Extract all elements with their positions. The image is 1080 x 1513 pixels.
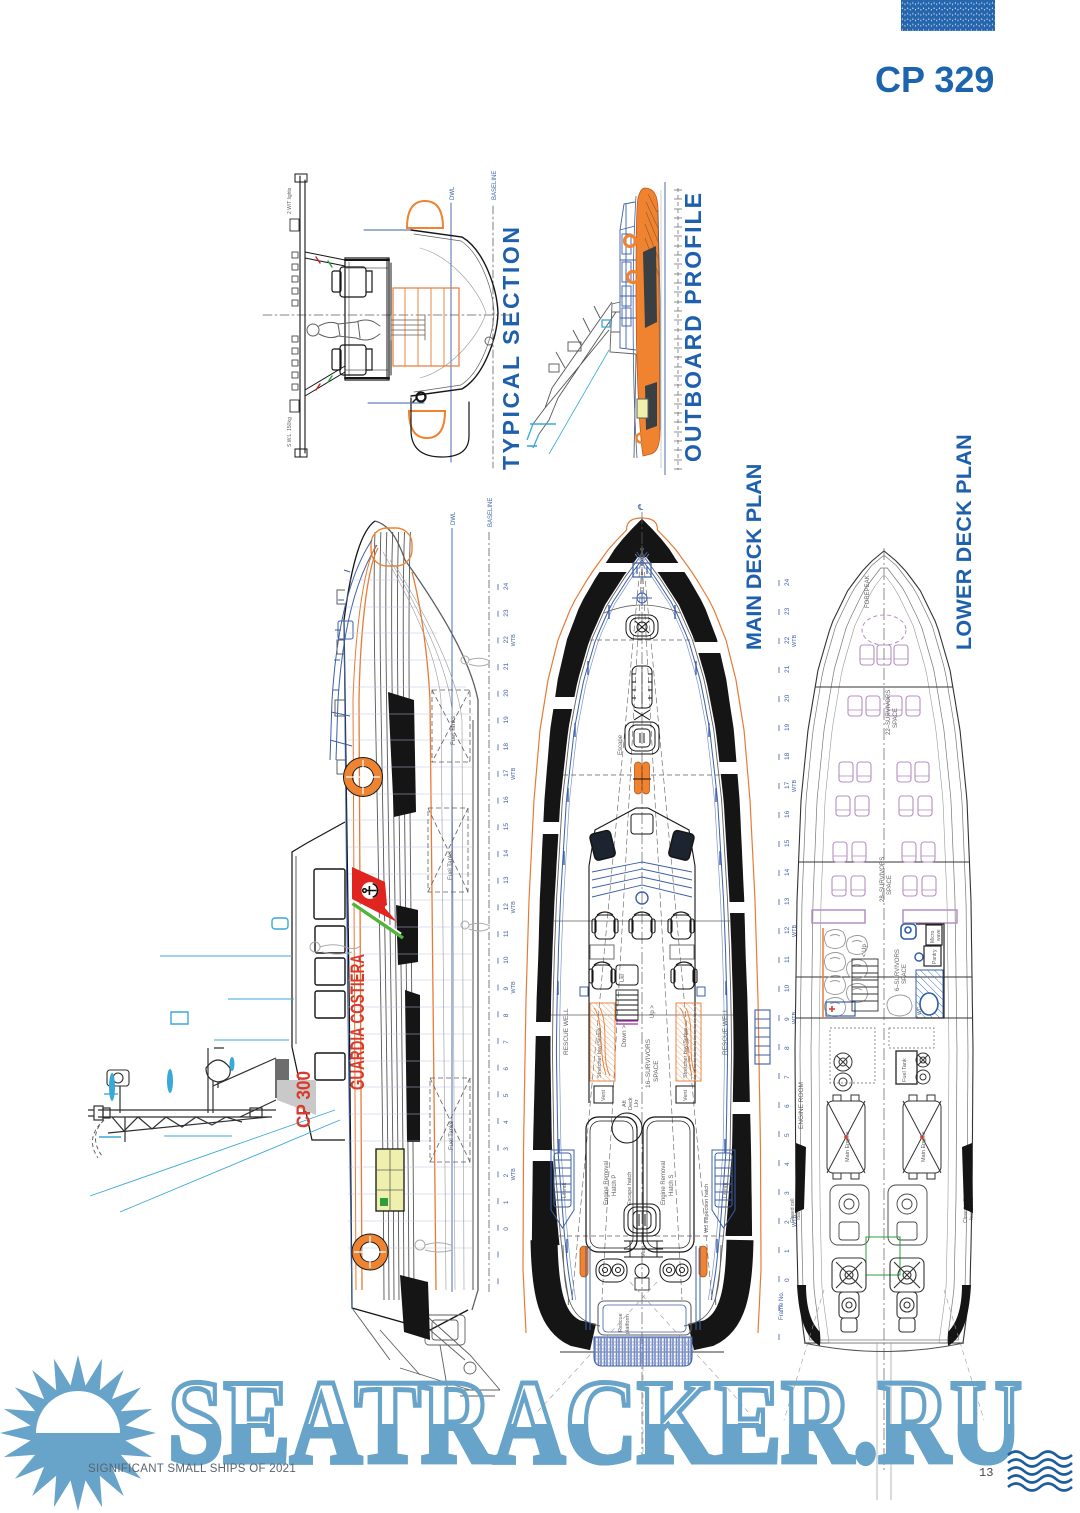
svg-text:Engine Removal: Engine Removal [661, 1161, 667, 1205]
svg-text:WC: WC [917, 1006, 923, 1015]
svg-text:15: 15 [503, 823, 510, 831]
svg-text:LOWER DECK PLAN: LOWER DECK PLAN [952, 434, 976, 650]
svg-text:8: 8 [503, 1013, 510, 1017]
svg-text:21: 21 [784, 665, 791, 673]
svg-text:RESCUE WELL: RESCUE WELL [722, 1008, 729, 1055]
svg-text:11: 11 [503, 930, 510, 937]
svg-text:Stretcher bay/Settee: Stretcher bay/Settee [683, 1028, 689, 1078]
svg-text:SPACE: SPACE [887, 875, 893, 895]
svg-text:5: 5 [784, 1133, 791, 1137]
svg-text:12: 12 [503, 903, 510, 911]
svg-text:CP 300: CP 300 [294, 1071, 315, 1128]
svg-text:28–SURVIVORS: 28–SURVIVORS [880, 857, 886, 902]
svg-text:8: 8 [784, 1046, 791, 1050]
svg-text:10: 10 [784, 984, 791, 992]
svg-text:23: 23 [784, 607, 791, 615]
svg-text:0: 0 [784, 1278, 791, 1282]
svg-text:21: 21 [503, 662, 510, 670]
svg-text:wave: wave [936, 929, 942, 941]
svg-text:SPACE: SPACE [902, 964, 908, 984]
svg-text:ENGINE ROOM: ENGINE ROOM [798, 1082, 805, 1129]
svg-text:GUARDIA COSTIERA: GUARDIA COSTIERA [348, 954, 369, 1090]
svg-text:Stretcher bay/Settee: Stretcher bay/Settee [597, 1028, 603, 1078]
svg-text:6: 6 [503, 1067, 510, 1071]
svg-text:22: 22 [503, 636, 510, 644]
svg-text:Fuel Tanks: Fuel Tanks [449, 1121, 455, 1150]
svg-text:Rescue: Rescue [618, 1313, 624, 1332]
svg-text:3: 3 [784, 1191, 791, 1195]
svg-text:WJ inspection hatch: WJ inspection hatch [704, 1184, 710, 1233]
svg-text:Hatch S: Hatch S [669, 1175, 675, 1196]
svg-text:Fuel Tank: Fuel Tank [902, 1058, 908, 1082]
svg-text:4: 4 [503, 1120, 510, 1124]
svg-text:Hatch P: Hatch P [612, 1175, 618, 1196]
svg-text:DWL: DWL [451, 511, 457, 525]
svg-text:24: 24 [784, 578, 791, 586]
svg-text:WTB: WTB [792, 779, 798, 792]
svg-text:< Up: < Up [862, 943, 868, 957]
svg-text:Vent: Vent [641, 1246, 647, 1257]
svg-text:19: 19 [503, 716, 510, 724]
svg-text:16–SURVIVORS: 16–SURVIVORS [645, 1038, 652, 1088]
svg-text:BASELINE: BASELINE [492, 171, 498, 200]
svg-text:WTB: WTB [511, 1168, 517, 1181]
svg-text:CP 329: CP 329 [875, 59, 994, 100]
svg-text:DWL: DWL [450, 186, 456, 200]
svg-text:7: 7 [784, 1075, 791, 1079]
svg-text:10: 10 [503, 956, 510, 964]
svg-text:15: 15 [784, 839, 791, 847]
svg-text:S.W.L. 150kg: S.W.L. 150kg [287, 417, 293, 447]
svg-text:℄: ℄ [637, 503, 644, 512]
svg-text:OUTBOARD PROFILE: OUTBOARD PROFILE [680, 191, 706, 462]
svg-text:WTB: WTB [511, 901, 517, 914]
svg-text:SIGNIFICANT SMALL SHIPS OF 202: SIGNIFICANT SMALL SHIPS OF 2021 [88, 1463, 296, 1475]
svg-text:MAIN DECK PLAN: MAIN DECK PLAN [742, 464, 766, 650]
svg-text:4: 4 [784, 1162, 791, 1166]
svg-text:18: 18 [784, 752, 791, 760]
svg-text:17: 17 [503, 769, 510, 777]
svg-text:2 W/T lights: 2 W/T lights [287, 187, 293, 214]
svg-text:Lkr: Lkr [620, 974, 626, 982]
svg-text:20: 20 [784, 694, 791, 702]
svg-text:Frame No.: Frame No. [779, 1291, 785, 1320]
svg-text:16: 16 [503, 796, 510, 804]
svg-text:14: 14 [503, 849, 510, 857]
svg-text:Down >: Down > [621, 1025, 628, 1047]
svg-text:Escape: Escape [618, 734, 624, 755]
svg-text:5: 5 [503, 1093, 510, 1097]
svg-text:19: 19 [784, 723, 791, 731]
svg-text:0: 0 [503, 1227, 510, 1231]
svg-text:platform: platform [625, 1314, 631, 1334]
svg-text:SPACE: SPACE [893, 708, 899, 728]
svg-text:Up >: Up > [650, 1005, 656, 1018]
svg-text:Fuel Tanks: Fuel Tanks [451, 716, 457, 745]
svg-text:WTB: WTB [511, 981, 517, 994]
svg-text:SPACE: SPACE [653, 1060, 660, 1082]
svg-text:22–SURVIVORS: 22–SURVIVORS [886, 690, 892, 735]
svg-text:Escape hatch: Escape hatch [627, 1172, 633, 1205]
svg-text:23: 23 [503, 609, 510, 617]
svg-text:9: 9 [784, 1017, 791, 1021]
svg-text:12: 12 [784, 926, 791, 934]
svg-text:17: 17 [784, 781, 791, 789]
svg-text:1: 1 [784, 1249, 791, 1253]
svg-text:6: 6 [784, 1104, 791, 1108]
svg-text:2: 2 [503, 1173, 510, 1177]
svg-text:7: 7 [503, 1040, 510, 1044]
svg-text:Engine Removal: Engine Removal [604, 1161, 610, 1205]
svg-text:Liferaft: Liferaft [562, 1182, 568, 1198]
svg-text:13: 13 [979, 1466, 993, 1480]
svg-text:13: 13 [784, 897, 791, 905]
svg-text:BASELINE: BASELINE [488, 498, 494, 527]
svg-text:RESCUE WELL: RESCUE WELL [563, 1008, 570, 1055]
svg-text:14: 14 [784, 868, 791, 876]
svg-text:6–SURVIVORS: 6–SURVIVORS [895, 949, 901, 991]
svg-text:Lkr: Lkr [634, 1099, 640, 1107]
svg-text:WTB: WTB [511, 767, 517, 780]
svg-text:1: 1 [503, 1200, 510, 1204]
svg-text:Vent: Vent [683, 1090, 689, 1101]
svg-text:TYPICAL SECTION: TYPICAL SECTION [498, 224, 524, 470]
svg-text:FOREPEAK: FOREPEAK [865, 575, 871, 608]
svg-text:9: 9 [503, 987, 510, 991]
svg-text:22: 22 [784, 636, 791, 644]
svg-text:20: 20 [503, 689, 510, 697]
svg-text:Liferaft: Liferaft [723, 1182, 729, 1198]
svg-text:3: 3 [503, 1147, 510, 1151]
svg-text:WTB: WTB [792, 634, 798, 647]
svg-text:Vent: Vent [601, 1090, 607, 1101]
svg-text:Pantry: Pantry [932, 949, 938, 964]
svg-text:16: 16 [784, 810, 791, 818]
svg-text:11: 11 [784, 956, 791, 963]
svg-text:Fuel Tanks: Fuel Tanks [448, 851, 454, 880]
svg-text:24: 24 [503, 582, 510, 590]
svg-text:WTB: WTB [511, 634, 517, 647]
svg-text:18: 18 [503, 743, 510, 751]
svg-text:13: 13 [503, 876, 510, 884]
